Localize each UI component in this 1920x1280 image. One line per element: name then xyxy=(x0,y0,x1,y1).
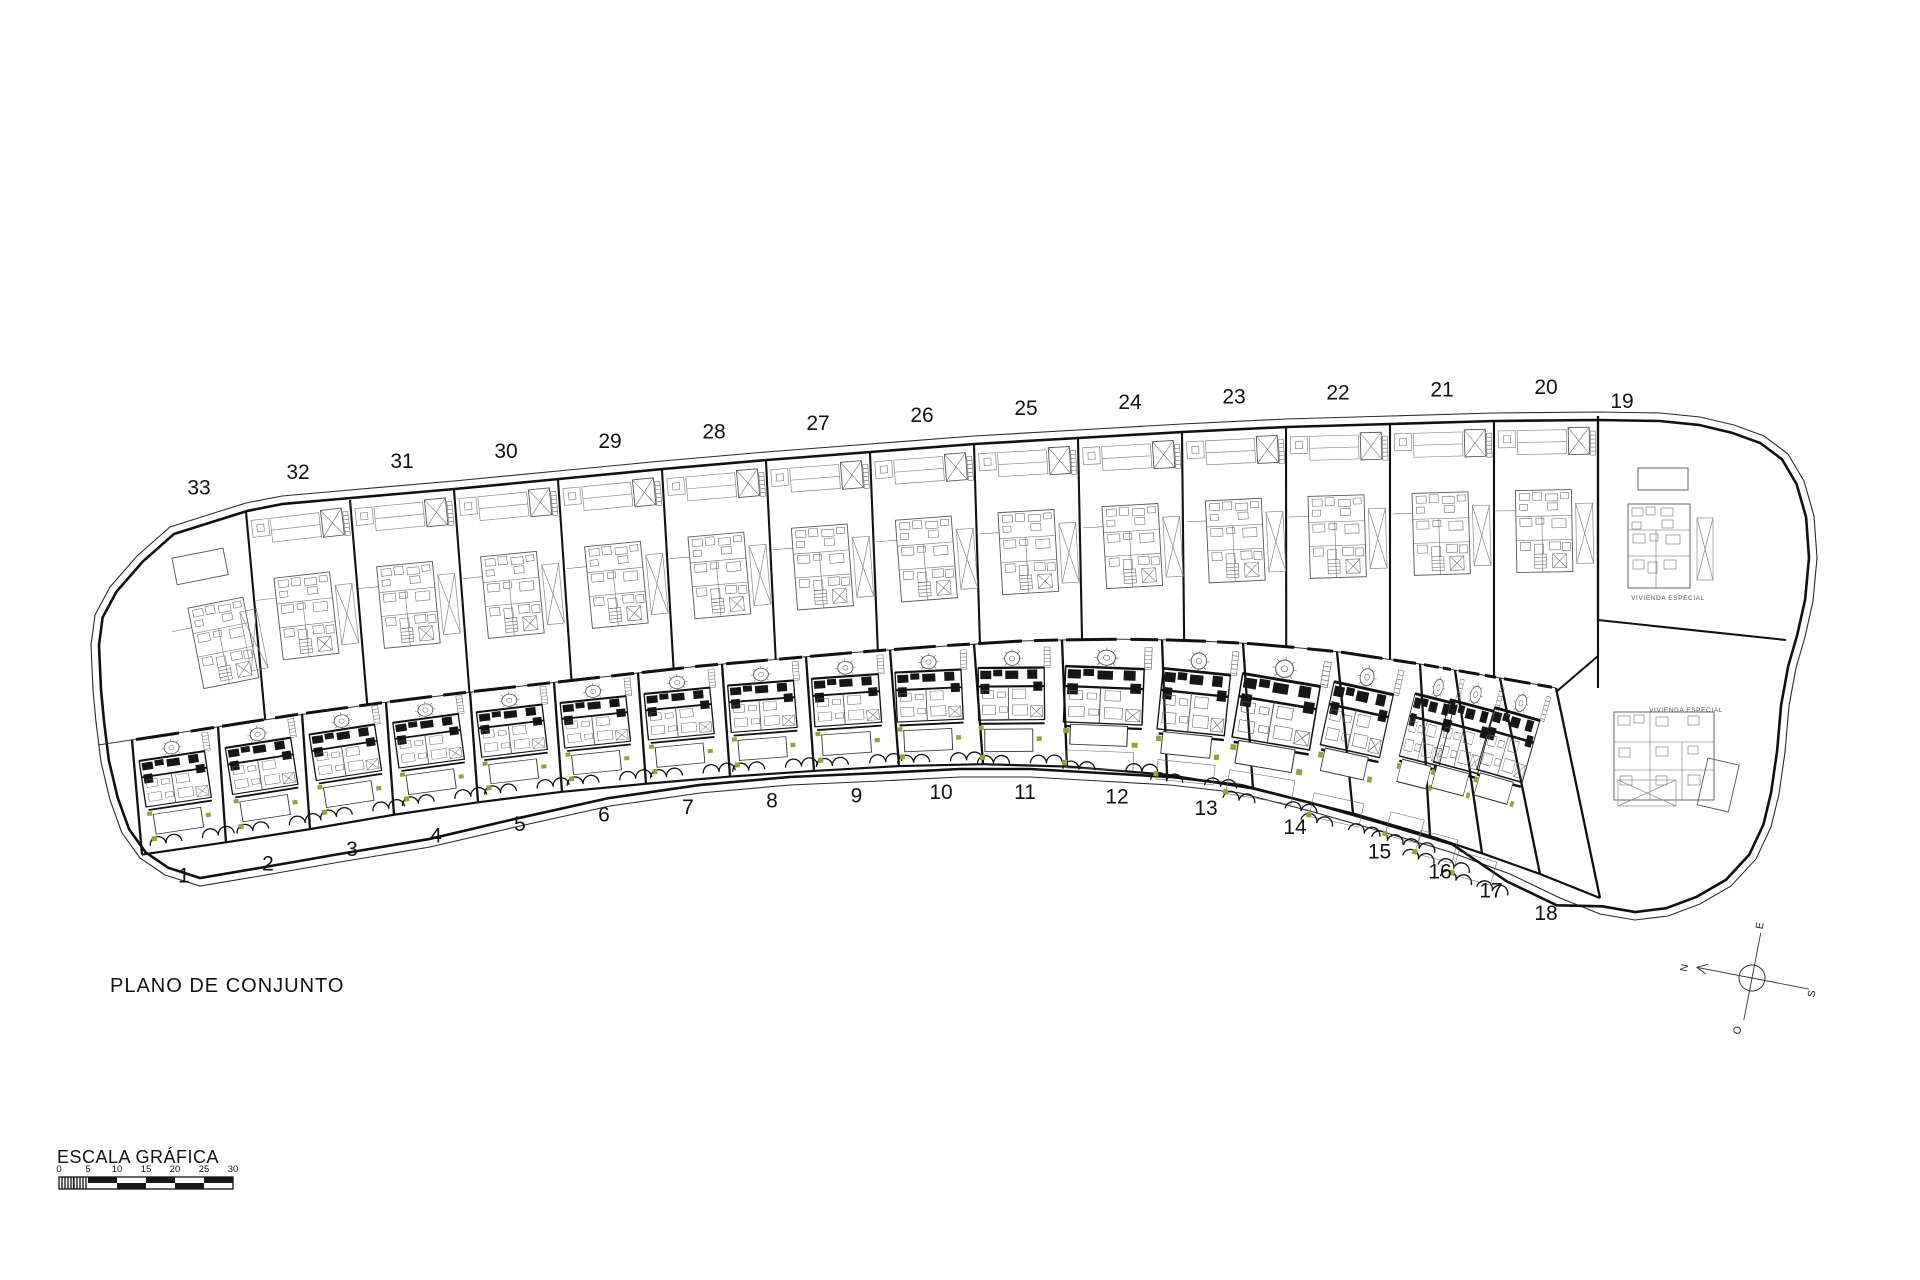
plan-shape xyxy=(251,519,270,538)
plan-shape xyxy=(1552,519,1566,528)
plan-shape xyxy=(944,453,967,482)
plan-shape xyxy=(1418,545,1428,553)
plan-shape xyxy=(165,791,174,797)
plan-shape xyxy=(998,462,1047,465)
plan-shape xyxy=(1325,727,1339,741)
plan-shape xyxy=(1012,689,1025,698)
plan-shape xyxy=(622,594,634,603)
plan-shape xyxy=(912,520,922,529)
plan-shape xyxy=(542,563,565,624)
plan-shape xyxy=(519,581,534,591)
rear-wall xyxy=(1034,640,1058,641)
plan-shape xyxy=(1618,716,1630,725)
plan-shape xyxy=(630,545,639,552)
plan-shape xyxy=(335,726,337,728)
plan-shape xyxy=(401,753,415,763)
plan-shape xyxy=(252,778,261,784)
house-outline xyxy=(377,561,441,648)
plan-shape xyxy=(1520,518,1532,526)
pool-19 xyxy=(1638,468,1688,490)
tree-icon xyxy=(501,693,517,707)
plan-shape xyxy=(1514,708,1516,711)
plan-shape xyxy=(490,607,501,616)
plan-shape xyxy=(999,535,1055,538)
plan-shape xyxy=(1047,563,1055,571)
plot-number-bottom: 2 xyxy=(262,852,274,875)
plan-shape xyxy=(1540,696,1551,722)
plan-shape xyxy=(417,705,419,707)
plot-top-27 xyxy=(767,460,879,611)
plan-shape xyxy=(1321,680,1328,681)
plan-shape xyxy=(1329,524,1337,530)
plan-shape xyxy=(668,726,676,732)
bush-icon xyxy=(869,753,901,763)
green-marker xyxy=(1509,801,1514,808)
plan-shape xyxy=(1119,507,1128,516)
green-marker xyxy=(322,809,328,815)
plan-shape xyxy=(1205,654,1207,657)
plan-shape xyxy=(166,757,180,766)
plan-shape xyxy=(142,761,154,770)
plan-shape xyxy=(1286,657,1287,660)
plan-shape xyxy=(213,630,222,637)
plan-shape xyxy=(993,670,1002,677)
front-edge xyxy=(142,842,226,854)
plan-shape xyxy=(456,698,462,699)
plan-shape xyxy=(647,707,657,717)
plan-shape xyxy=(1697,758,1739,812)
plan-shape xyxy=(1031,523,1041,531)
plan-shape xyxy=(997,692,1005,698)
green-marker xyxy=(206,813,212,818)
plan-shape xyxy=(917,546,925,553)
plan-shape xyxy=(1135,517,1145,525)
green-marker xyxy=(732,737,737,742)
plan-shape xyxy=(699,722,712,733)
plot-number-bottom: 10 xyxy=(929,781,952,804)
plan-shape xyxy=(203,739,209,740)
plan-shape xyxy=(532,738,545,749)
plan-shape xyxy=(1124,576,1136,577)
plan-shape xyxy=(1664,560,1676,569)
plan-shape xyxy=(1421,743,1433,758)
front-edge xyxy=(899,764,983,766)
plan-shape xyxy=(928,530,939,538)
rear-wall xyxy=(359,703,382,706)
rear-wall xyxy=(1504,679,1530,684)
plan-shape xyxy=(1227,574,1239,575)
rear-wall xyxy=(222,720,264,727)
plan-shape xyxy=(397,735,407,745)
plot-content xyxy=(222,718,308,822)
front-edge xyxy=(310,815,394,829)
plan-shape xyxy=(792,662,799,681)
plan-shape xyxy=(1124,533,1132,539)
plan-shape xyxy=(978,686,1044,687)
plan-shape xyxy=(1393,513,1413,514)
plan-shape xyxy=(1259,707,1270,715)
plot-divider-bottom-row xyxy=(1420,664,1430,836)
green-marker xyxy=(458,774,464,779)
plan-shape xyxy=(1450,750,1457,758)
plan-shape xyxy=(1002,515,1012,523)
plan-shape xyxy=(374,722,380,723)
house-block xyxy=(1232,673,1320,750)
plan-shape xyxy=(1107,520,1115,526)
plan-shape xyxy=(1162,687,1172,700)
plan-shape xyxy=(1619,748,1630,757)
rear-wall xyxy=(1066,639,1117,640)
plan-shape xyxy=(1440,676,1441,679)
plan-shape xyxy=(1313,524,1325,532)
plan-shape xyxy=(300,649,312,650)
tree-icon xyxy=(249,727,266,742)
plot-top-24 xyxy=(1078,440,1187,590)
plan-shape xyxy=(915,694,923,700)
plan-shape xyxy=(479,713,491,722)
plan-shape xyxy=(1294,730,1310,746)
plan-shape xyxy=(1323,671,1330,672)
rear-wall xyxy=(695,664,718,666)
plan-shape xyxy=(282,772,295,784)
plan-shape xyxy=(531,604,540,613)
plan-shape xyxy=(230,760,240,771)
plot-divider-bottom-row xyxy=(302,714,310,829)
tree-icon xyxy=(921,655,937,669)
plot-number-top: 27 xyxy=(806,412,829,435)
special-area-top-left-line xyxy=(1556,656,1598,692)
plot-divider-bottom-row xyxy=(1337,652,1353,814)
tree-icon xyxy=(1009,656,1014,661)
plan-shape xyxy=(1514,701,1516,702)
tree-icon xyxy=(1518,700,1523,707)
plan-shape xyxy=(485,601,541,606)
plan-shape xyxy=(515,704,517,706)
plan-shape xyxy=(165,753,167,755)
plot-bottom-11 xyxy=(977,647,1063,764)
rear-wall xyxy=(306,707,348,713)
plan-shape xyxy=(300,642,312,643)
rear-wall xyxy=(443,692,466,695)
plan-shape xyxy=(1358,675,1361,676)
plan-shape xyxy=(1206,451,1255,453)
house-block xyxy=(560,696,630,748)
plan-shape xyxy=(1087,693,1097,699)
plan-shape xyxy=(1374,679,1377,680)
plot-top-25 xyxy=(974,446,1083,596)
house-block xyxy=(1157,668,1230,735)
green-marker xyxy=(790,743,795,748)
plan-shape xyxy=(1325,498,1334,506)
green-marker xyxy=(541,764,546,769)
plan-shape xyxy=(646,553,669,614)
green-marker xyxy=(1214,754,1220,760)
plan-shape xyxy=(563,487,582,506)
plan-shape xyxy=(1353,498,1361,504)
plan-shape xyxy=(693,550,701,557)
house-block xyxy=(1064,666,1145,725)
tree-icon xyxy=(506,698,512,703)
house-outline xyxy=(585,541,649,628)
plan-shape xyxy=(1036,539,1050,549)
plan-shape xyxy=(1238,720,1255,734)
plan-shape xyxy=(274,740,285,750)
plan-shape xyxy=(218,604,231,613)
plan-shape xyxy=(814,593,826,594)
plan-shape xyxy=(1444,722,1488,734)
special-villa-label-upper: VIVIENDA ESPECIAL xyxy=(1631,595,1705,602)
plan-shape xyxy=(729,596,744,611)
plan-shape xyxy=(1140,533,1154,543)
plan-shape xyxy=(205,605,215,615)
plan-shape xyxy=(1369,665,1370,668)
plan-shape xyxy=(344,519,349,520)
plan-shape xyxy=(1479,711,1489,724)
plan-shape xyxy=(880,466,888,474)
plan-shape xyxy=(1243,528,1257,538)
plan-shape xyxy=(1432,692,1434,695)
plan-shape xyxy=(188,754,199,764)
plan-shape xyxy=(487,583,500,592)
plan-shape xyxy=(933,545,948,555)
plan-shape xyxy=(1546,701,1550,702)
plan-shape xyxy=(1396,683,1401,684)
rear-wall xyxy=(1217,642,1239,643)
plan-shape xyxy=(326,625,335,634)
plan-shape xyxy=(410,576,421,584)
tree-icon xyxy=(753,668,769,682)
plan-shape xyxy=(318,765,332,775)
green-marker xyxy=(649,744,654,749)
plan-shape xyxy=(486,570,495,577)
plan-shape xyxy=(505,621,517,622)
plan-shape xyxy=(791,476,840,480)
plan-shape xyxy=(257,524,265,532)
plan-shape xyxy=(875,460,893,478)
plan-shape xyxy=(1459,688,1463,689)
plan-shape xyxy=(755,685,769,694)
plan-shape xyxy=(918,708,926,714)
green-marker xyxy=(956,735,961,740)
house-outline xyxy=(1412,492,1470,576)
plan-shape xyxy=(1015,513,1024,522)
plan-shape xyxy=(1520,504,1528,510)
plan-shape xyxy=(502,705,504,707)
pool xyxy=(489,759,539,784)
plan-shape xyxy=(919,589,931,590)
plan-shape xyxy=(1290,436,1307,453)
plan-shape xyxy=(743,685,752,692)
plan-shape xyxy=(1232,656,1238,657)
plan-shape xyxy=(733,535,741,542)
plan-shape xyxy=(415,740,424,746)
plan-shape xyxy=(1650,534,1658,541)
plan-shape xyxy=(682,676,684,678)
plan-shape xyxy=(240,746,250,753)
tree-icon xyxy=(1196,658,1202,664)
plan-shape xyxy=(1276,706,1293,720)
plan-shape xyxy=(288,722,294,723)
plot-number-bottom: 8 xyxy=(766,789,778,812)
plan-shape xyxy=(1453,732,1460,740)
plan-shape xyxy=(1188,693,1192,732)
pool xyxy=(324,781,374,808)
plan-shape xyxy=(1340,508,1350,515)
front-edge xyxy=(983,764,1067,766)
plan-shape xyxy=(348,760,364,771)
bush-icon xyxy=(619,769,652,780)
plan-shape xyxy=(1393,670,1404,696)
plan-shape xyxy=(1235,503,1247,511)
plan-shape xyxy=(839,678,853,687)
front-edge xyxy=(226,829,310,842)
plan-shape xyxy=(1000,707,1008,713)
plan-shape xyxy=(1005,564,1015,573)
plan-shape xyxy=(827,679,837,686)
plan-shape xyxy=(1083,447,1101,465)
plan-shape xyxy=(313,625,325,634)
plot-content xyxy=(642,669,722,768)
plan-shape xyxy=(759,700,761,730)
plan-shape xyxy=(148,791,162,801)
plan-shape xyxy=(796,541,804,548)
plan-shape xyxy=(837,662,839,664)
plan-shape xyxy=(592,716,595,745)
pool xyxy=(240,794,291,821)
plan-shape xyxy=(414,614,426,623)
plan-shape xyxy=(1403,739,1414,752)
plan-shape xyxy=(922,673,935,682)
plan-shape xyxy=(1088,452,1095,459)
plan-shape xyxy=(1444,505,1454,512)
plot-content xyxy=(390,695,474,795)
plan-shape xyxy=(1192,652,1194,655)
plot-divider-bottom-row xyxy=(554,682,562,791)
plan-shape xyxy=(386,617,397,626)
plan-shape xyxy=(815,693,825,703)
plan-shape xyxy=(235,779,249,789)
plan-shape xyxy=(1342,547,1353,555)
rear-wall xyxy=(611,673,634,676)
green-marker xyxy=(1318,751,1324,758)
tree-icon xyxy=(758,672,764,677)
plan-shape xyxy=(1028,514,1040,522)
plan-shape xyxy=(1395,688,1400,689)
plan-shape xyxy=(1469,699,1471,702)
plan-shape xyxy=(204,745,210,746)
plot-19-bottom-line xyxy=(1598,620,1786,640)
plan-shape xyxy=(624,681,630,682)
plan-shape xyxy=(1109,558,1119,567)
plan-shape xyxy=(290,735,296,736)
plan-shape xyxy=(1212,676,1223,688)
plan-shape xyxy=(736,469,759,498)
plan-shape xyxy=(528,488,551,517)
plan-shape xyxy=(463,577,483,579)
plan-shape xyxy=(1027,669,1037,678)
plan-shape xyxy=(609,615,621,616)
plan-shape xyxy=(1321,684,1328,685)
rear-wall xyxy=(275,714,298,718)
plan-shape xyxy=(1152,441,1175,469)
plan-shape xyxy=(813,554,821,561)
plan-shape xyxy=(931,706,946,716)
plan-shape xyxy=(583,494,632,499)
plan-shape xyxy=(485,558,496,566)
tree-icon xyxy=(339,719,345,724)
plot-content xyxy=(474,686,556,784)
plan-shape xyxy=(431,748,447,759)
plan-shape xyxy=(945,569,954,578)
plan-shape xyxy=(383,593,396,602)
plan-shape xyxy=(408,721,418,728)
plan-shape xyxy=(1254,551,1262,559)
tree-icon xyxy=(255,732,261,737)
plan-shape xyxy=(344,523,349,524)
plan-shape xyxy=(1517,442,1566,443)
plan-shape xyxy=(202,735,208,736)
plan-shape xyxy=(1503,436,1510,443)
plan-shape xyxy=(1460,684,1464,685)
plan-shape xyxy=(615,547,628,555)
plan-shape xyxy=(1523,692,1524,695)
plan-shape xyxy=(1312,499,1322,506)
plan-shape xyxy=(1433,521,1441,527)
plan-shape xyxy=(1634,715,1644,723)
plan-shape xyxy=(1124,572,1136,573)
plan-shape xyxy=(506,628,518,629)
plan-shape xyxy=(251,740,253,742)
plot-top-21 xyxy=(1390,429,1495,576)
plan-shape xyxy=(1144,647,1152,669)
plan-shape xyxy=(1227,528,1235,534)
plan-shape xyxy=(258,760,263,790)
plan-shape xyxy=(541,696,547,697)
plan-shape xyxy=(680,708,694,717)
bush-icon xyxy=(1403,837,1436,853)
green-marker xyxy=(1132,743,1138,748)
tree-icon xyxy=(1514,693,1529,713)
plan-shape xyxy=(731,699,741,709)
plan-shape xyxy=(289,728,295,729)
plan-shape xyxy=(815,597,827,598)
plan-shape xyxy=(1020,585,1032,586)
plan-shape xyxy=(725,585,737,594)
plan-shape xyxy=(1240,693,1253,707)
plan-shape xyxy=(901,707,914,716)
rear-wall xyxy=(390,697,432,702)
bush-icon xyxy=(950,752,982,761)
plan-shape xyxy=(1460,545,1468,553)
plan-shape xyxy=(599,695,601,697)
plot-number-19: 19 xyxy=(1610,390,1633,413)
plan-shape xyxy=(710,562,718,569)
plan-shape xyxy=(615,729,628,740)
tree-icon xyxy=(1281,665,1288,672)
plan-shape xyxy=(540,689,546,690)
plot-number-bottom: 6 xyxy=(598,804,610,827)
plan-shape xyxy=(850,661,852,663)
plan-shape xyxy=(632,478,655,507)
plan-shape xyxy=(484,742,498,752)
plan-shape xyxy=(1113,651,1116,653)
tree-icon xyxy=(1468,685,1482,704)
front-edge xyxy=(1430,836,1482,853)
plan-shape xyxy=(1688,775,1700,785)
plan-shape xyxy=(335,765,344,771)
plan-shape xyxy=(932,569,944,578)
plan-shape xyxy=(949,706,961,717)
